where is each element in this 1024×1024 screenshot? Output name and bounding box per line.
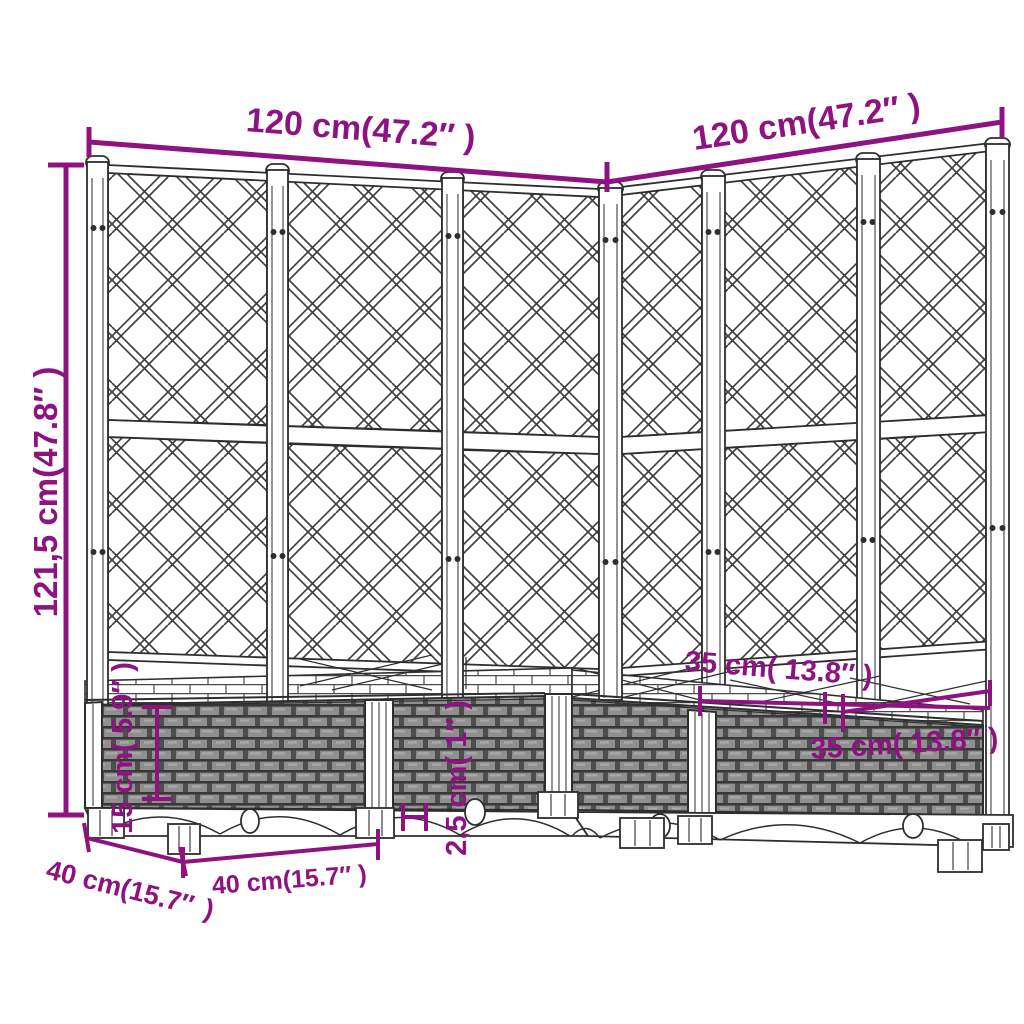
tray-front (85, 808, 588, 836)
dim-label-foot-height: 2,5 cm( 1″ ) (441, 700, 473, 856)
lattice-panel (108, 172, 267, 425)
weave-face-front (85, 696, 545, 810)
foot (538, 792, 578, 818)
dim-label-total-height: 121,5 cm(47.8″ ) (27, 367, 64, 618)
lattice-panel (108, 437, 267, 663)
foot (620, 818, 664, 848)
trellis-right-wall (621, 141, 1008, 676)
post (442, 178, 463, 705)
dim-label-top-left-width: 120 cm(47.2″ ) (245, 101, 477, 157)
foot (983, 824, 1009, 850)
dim-label-front-width: 40 cm(15.7″ ) (211, 860, 368, 900)
foot (938, 840, 982, 872)
trellis-left-wall (108, 165, 599, 677)
foot (356, 808, 394, 838)
post (857, 159, 880, 716)
post (599, 188, 622, 700)
tray-hole (903, 814, 923, 838)
lattice-panel (621, 449, 702, 674)
lattice-panel (288, 444, 442, 669)
post (267, 170, 288, 710)
diagram-canvas: 120 cm(47.2″ ) 120 cm(47.2″ ) 121,5 cm(4… (0, 0, 1024, 1024)
tray-hole (241, 809, 259, 833)
lattice-panel (879, 432, 986, 655)
dim-label-box-height: 15 cm( 5.9″ ) (107, 662, 139, 834)
post (87, 162, 108, 710)
lattice-panel (879, 150, 986, 422)
lattice-panel (621, 184, 702, 437)
lattice-panel (724, 166, 857, 431)
lattice-panel (288, 181, 442, 431)
dim-label-top-right-width: 120 cm(47.2″ ) (690, 86, 923, 158)
foot (678, 816, 712, 844)
dim-label-side-depth: 40 cm(15.7″ (43, 854, 197, 920)
post (986, 144, 1009, 818)
lattice-panel (463, 450, 599, 674)
lattice-panel (724, 440, 857, 666)
planter-dimension-diagram: 120 cm(47.2″ ) 120 cm(47.2″ ) 121,5 cm(4… (0, 0, 1024, 1024)
post (702, 176, 725, 716)
lattice-panel (463, 189, 599, 437)
